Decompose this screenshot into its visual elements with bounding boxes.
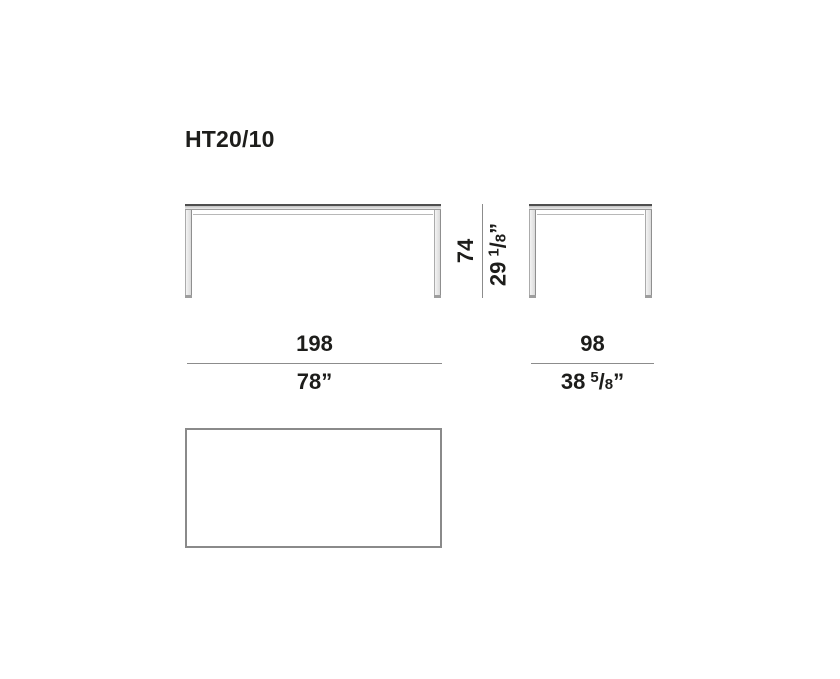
side-tabletop: [529, 204, 652, 210]
side-left-leg: [529, 205, 536, 298]
depth-cm-value: 98: [580, 331, 604, 356]
depth-cm-label: 98: [531, 332, 654, 356]
side-right-leg: [645, 205, 652, 298]
width-cm-label: 198: [187, 332, 442, 356]
width-inch-whole: 78: [297, 369, 321, 394]
depth-inch-denominator: 8: [605, 376, 613, 393]
side-elevation-view: [529, 204, 652, 298]
top-plan-view-outline: [185, 428, 442, 548]
depth-dimension-line: [531, 363, 654, 364]
height-cm-label: 74: [454, 201, 478, 301]
model-title: HT20/10: [185, 126, 275, 153]
height-inch-slash: /: [486, 242, 511, 248]
height-inch-denominator: 8: [493, 234, 510, 242]
side-left-leg-foot: [529, 295, 536, 298]
front-tabletop: [185, 204, 441, 210]
width-inch-label: 78”: [187, 366, 442, 397]
height-inch-whole: 29: [486, 262, 511, 286]
depth-inch-numerator: 5: [590, 369, 598, 386]
front-left-leg-foot: [185, 295, 192, 298]
side-right-leg-foot: [645, 295, 652, 298]
front-apron-line: [193, 214, 433, 215]
width-inch-mark: ”: [321, 369, 332, 394]
side-apron-line: [537, 214, 644, 215]
spec-sheet: HT20/10 74 291/8” 198 78” 9: [0, 0, 840, 679]
height-inch-mark: ”: [486, 223, 511, 234]
height-cm-value: 74: [453, 239, 478, 263]
height-inch-numerator: 1: [486, 248, 503, 256]
depth-inch-mark: ”: [613, 369, 624, 394]
front-right-leg: [434, 205, 441, 298]
front-right-leg-foot: [434, 295, 441, 298]
front-left-leg: [185, 205, 192, 298]
depth-inch-whole: 38: [561, 369, 585, 394]
height-inch-label: 291/8”: [483, 200, 514, 310]
width-dimension-line: [187, 363, 442, 364]
depth-inch-label: 385/8”: [531, 366, 654, 397]
front-elevation-view: [185, 204, 441, 298]
width-cm-value: 198: [296, 331, 333, 356]
